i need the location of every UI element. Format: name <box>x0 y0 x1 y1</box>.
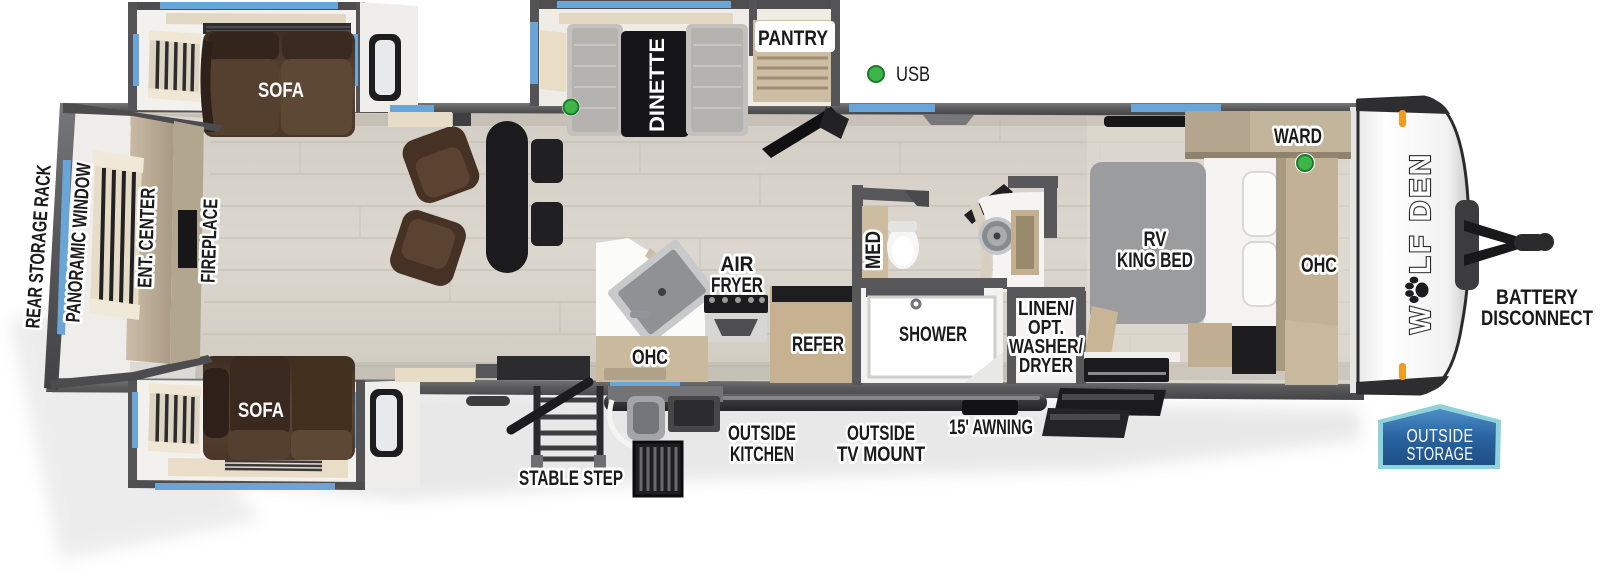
svg-text:LF DEN: LF DEN <box>1405 151 1437 274</box>
svg-text:REFER: REFER <box>792 333 844 356</box>
svg-text:ENT. CENTER: ENT. CENTER <box>134 187 159 288</box>
svg-text:DINETTE: DINETTE <box>646 38 669 132</box>
svg-text:KING BED: KING BED <box>1117 249 1193 272</box>
svg-text:OUTSIDE: OUTSIDE <box>1407 426 1474 446</box>
svg-text:MED: MED <box>862 231 885 269</box>
svg-text:W: W <box>1405 304 1437 334</box>
svg-text:AIR: AIR <box>721 253 754 276</box>
svg-text:PANTRY: PANTRY <box>758 27 828 50</box>
svg-text:15' AWNING: 15' AWNING <box>949 416 1033 439</box>
svg-text:KITCHEN: KITCHEN <box>730 443 794 466</box>
svg-text:FIREPLACE: FIREPLACE <box>198 198 223 283</box>
svg-text:DRYER: DRYER <box>1019 355 1073 377</box>
svg-text:OUTSIDE: OUTSIDE <box>728 422 796 445</box>
svg-text:DISCONNECT: DISCONNECT <box>1481 307 1593 330</box>
svg-text:SOFA: SOFA <box>238 399 284 422</box>
svg-text:WARD: WARD <box>1274 125 1322 148</box>
svg-text:USB: USB <box>896 63 930 86</box>
svg-text:SHOWER: SHOWER <box>899 323 967 346</box>
svg-text:RV: RV <box>1144 228 1167 251</box>
svg-text:SOFA: SOFA <box>258 79 304 102</box>
svg-text:BATTERY: BATTERY <box>1496 286 1578 309</box>
svg-text:OHC: OHC <box>632 346 668 369</box>
svg-text:FRYER: FRYER <box>711 274 763 297</box>
svg-text:OHC: OHC <box>1301 254 1337 277</box>
svg-text:STABLE STEP: STABLE STEP <box>519 467 623 490</box>
svg-text:STORAGE: STORAGE <box>1407 444 1474 464</box>
svg-text:OUTSIDE: OUTSIDE <box>847 422 915 445</box>
svg-text:TV MOUNT: TV MOUNT <box>837 443 925 466</box>
